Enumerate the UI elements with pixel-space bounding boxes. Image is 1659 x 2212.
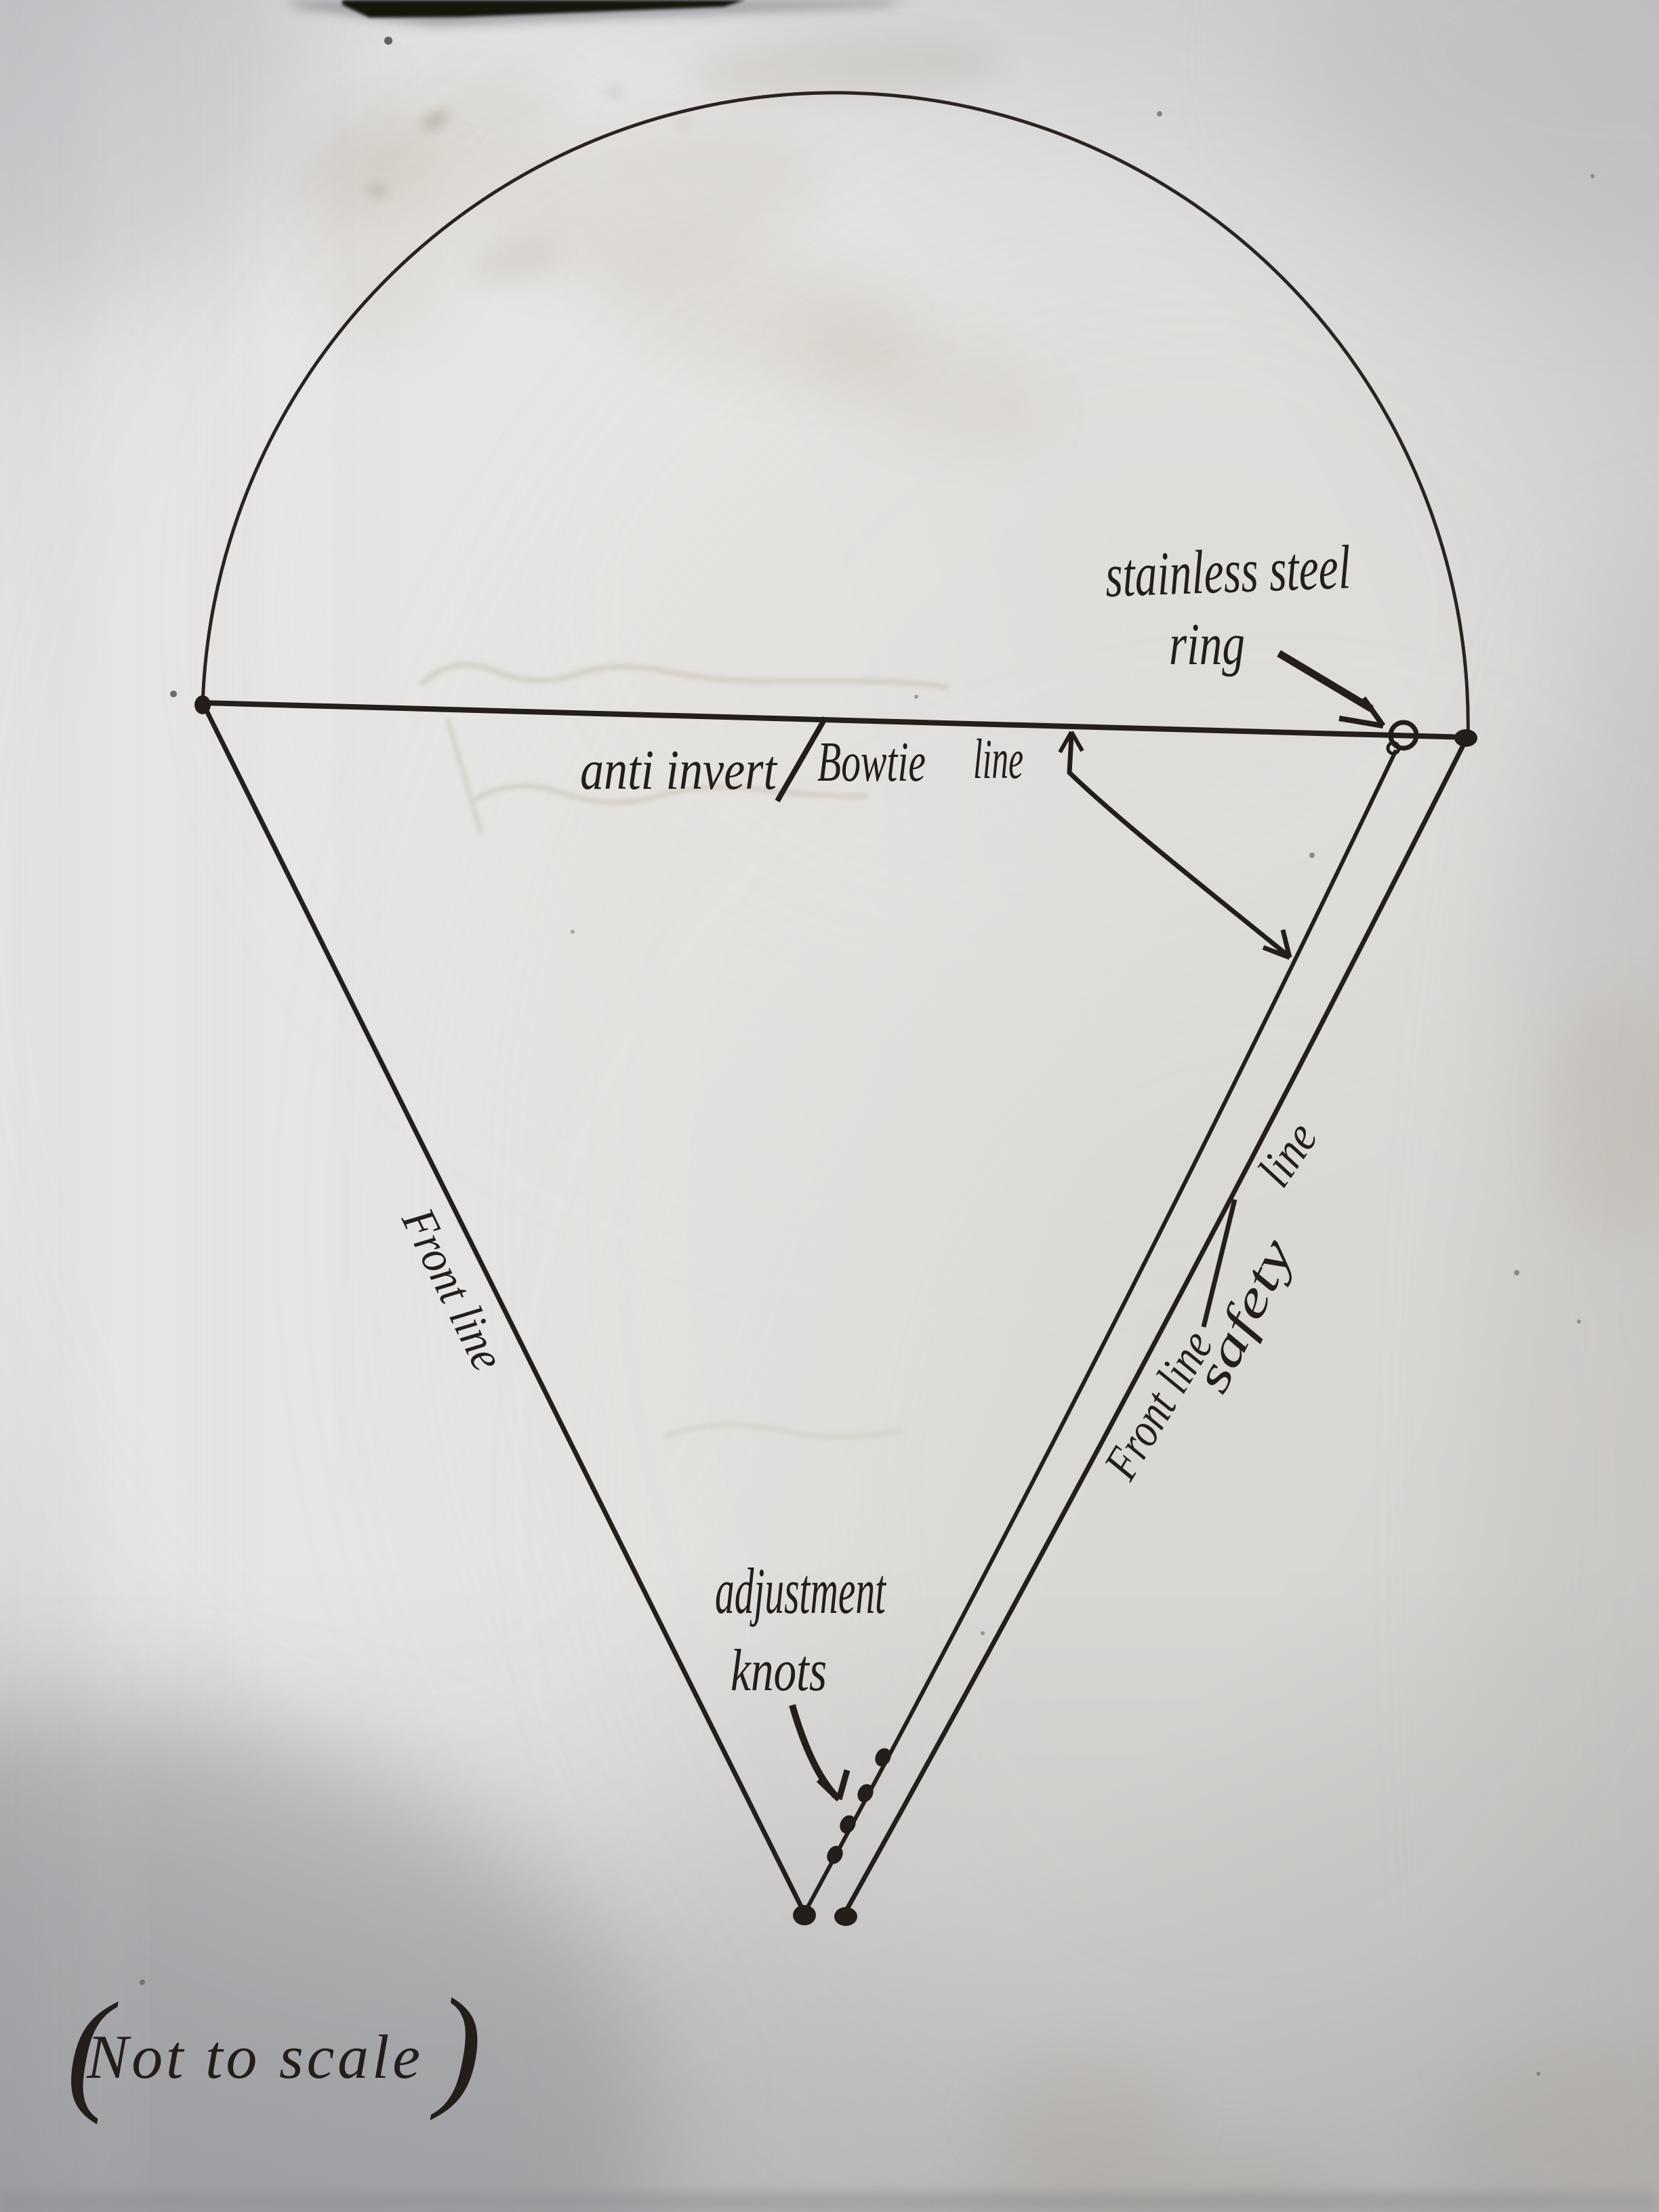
svg-text:Bowtie: Bowtie bbox=[817, 731, 926, 794]
svg-text:anti invert: anti invert bbox=[580, 739, 778, 802]
svg-text:ring: ring bbox=[1169, 612, 1245, 678]
svg-text:stainless steel: stainless steel bbox=[1104, 532, 1351, 610]
svg-text:): ) bbox=[430, 1971, 482, 2121]
svg-text:knots: knots bbox=[731, 1638, 827, 1704]
svg-text:line: line bbox=[973, 728, 1023, 791]
svg-text:adjustment: adjustment bbox=[715, 1555, 886, 1627]
